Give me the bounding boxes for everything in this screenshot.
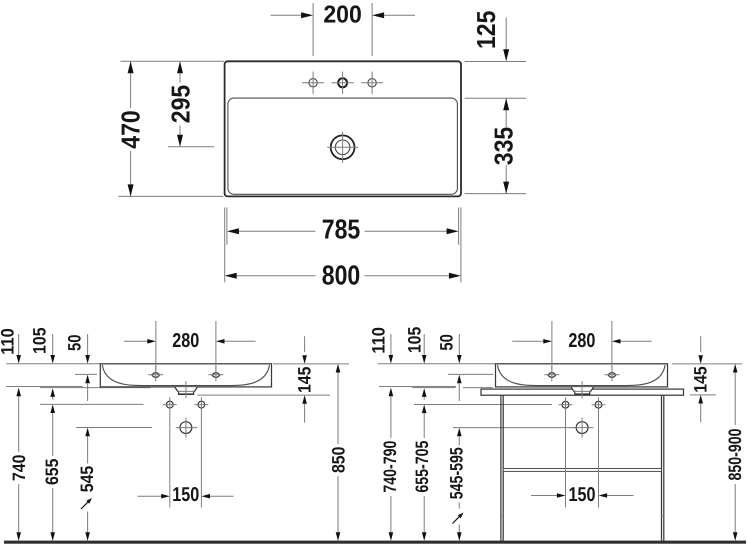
svg-text:145: 145 — [691, 366, 711, 393]
svg-text:655: 655 — [42, 459, 62, 486]
svg-text:200: 200 — [323, 1, 362, 28]
svg-text:545-595: 545-595 — [447, 447, 467, 499]
svg-text:280: 280 — [568, 330, 595, 352]
svg-text:740-790: 740-790 — [380, 441, 400, 493]
svg-text:800: 800 — [322, 260, 361, 291]
svg-text:150: 150 — [172, 484, 199, 506]
svg-text:850: 850 — [328, 447, 348, 474]
svg-text:50: 50 — [436, 334, 456, 351]
svg-text:785: 785 — [322, 213, 361, 244]
svg-text:110: 110 — [368, 327, 388, 354]
svg-text:105: 105 — [30, 327, 50, 354]
svg-text:280: 280 — [172, 330, 199, 352]
svg-text:145: 145 — [295, 367, 315, 394]
svg-text:125: 125 — [471, 11, 501, 50]
svg-text:150: 150 — [569, 484, 596, 506]
svg-text:110: 110 — [0, 328, 18, 355]
svg-text:335: 335 — [489, 127, 519, 166]
svg-text:850-900: 850-900 — [725, 429, 745, 481]
svg-text:545: 545 — [77, 466, 97, 493]
svg-text:105: 105 — [405, 327, 425, 354]
svg-text:655-705: 655-705 — [412, 441, 432, 493]
svg-text:470: 470 — [115, 110, 145, 149]
svg-text:740: 740 — [9, 455, 29, 482]
svg-text:295: 295 — [166, 85, 196, 124]
svg-text:50: 50 — [64, 334, 84, 351]
